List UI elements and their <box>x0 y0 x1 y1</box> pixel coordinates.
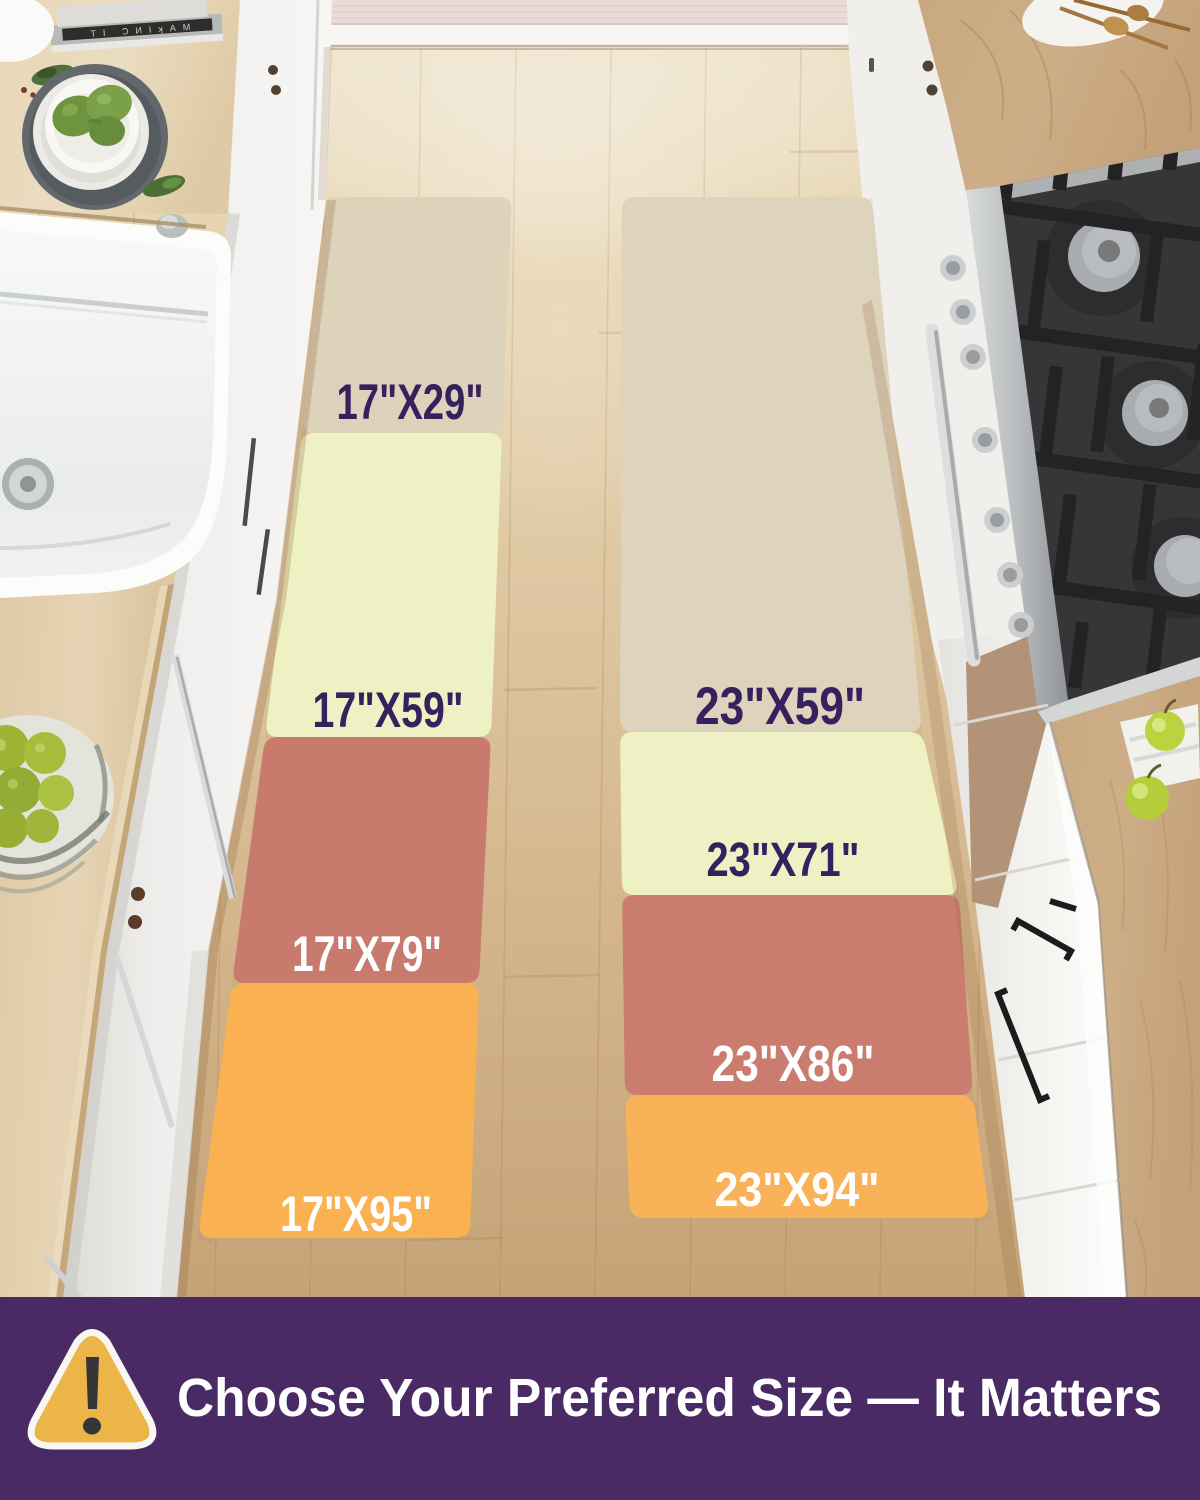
svg-text:17"X95": 17"X95" <box>280 1186 432 1242</box>
svg-text:Choose Your Preferred Size — I: Choose Your Preferred Size — It Matters <box>177 1368 1162 1428</box>
svg-text:17"X79": 17"X79" <box>292 926 442 982</box>
svg-text:23"X71": 23"X71" <box>707 834 860 887</box>
svg-text:17"X59": 17"X59" <box>313 682 464 738</box>
svg-text:23"X86": 23"X86" <box>712 1035 875 1092</box>
svg-text:17"X29": 17"X29" <box>337 374 484 430</box>
svg-text:23"X94": 23"X94" <box>715 1164 880 1217</box>
svg-text:23"X59": 23"X59" <box>695 677 865 736</box>
